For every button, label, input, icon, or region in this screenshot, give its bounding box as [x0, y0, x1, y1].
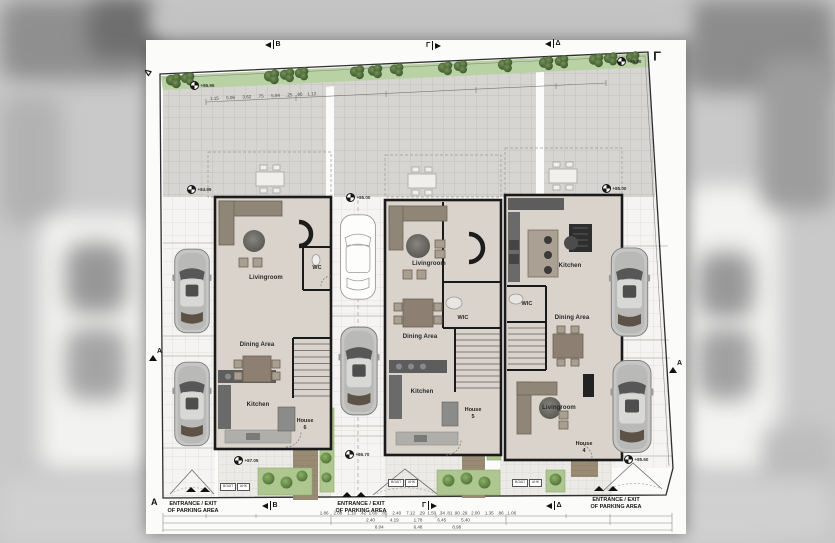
section-marker-gamma-bottom: Γ: [422, 501, 437, 510]
elevation-marker: +86.70: [345, 450, 369, 459]
house-tag-name: House: [297, 418, 314, 424]
room-label-livingroom: Livingroom: [249, 275, 283, 281]
section-arrow-icon: [262, 503, 268, 509]
house-tag: House 5: [465, 407, 482, 421]
elevation-marker: +87.05: [234, 456, 258, 465]
entrance-label: ENTRANCE / EXIT OF PARKING AREA: [590, 497, 641, 511]
house-tag: House 6: [297, 418, 314, 432]
utility-boxes: ΒΟΑΠ ΑΗΚ: [512, 479, 542, 487]
car-outline: [341, 215, 376, 299]
gate-chevrons: [186, 487, 210, 492]
room-label-kitchen: Kitchen: [411, 389, 434, 395]
house-tag-number: 5: [471, 414, 474, 420]
entrance-line2: OF PARKING AREA: [590, 504, 641, 510]
elevation-marker: +85.60: [624, 455, 648, 464]
dimension-text-row3: 8.04 6.48 8.98: [168, 525, 668, 530]
section-arrow-icon: [149, 348, 157, 361]
room-label-dining: Dining Area: [403, 334, 438, 340]
section-marker-b-top: B: [265, 40, 281, 49]
house-tag-name: House: [576, 441, 593, 447]
house-tag-name: House: [465, 407, 482, 413]
house-tag-number: 4: [582, 448, 585, 454]
entrance-line1: ENTRANCE / EXIT: [169, 501, 216, 507]
level-icon: [602, 184, 611, 193]
elevation-marker: +85.00: [602, 184, 626, 193]
floor-plan-sheet: Livingroom WC Dining Area Kitchen Living…: [146, 40, 686, 534]
utility-boxes: ΒΟΑΠ ΑΗΚ: [388, 479, 418, 487]
plan-drawing: [146, 40, 686, 534]
gate-chevrons: [594, 486, 618, 491]
room-label-dining: Dining Area: [555, 315, 590, 321]
blur-blob: [698, 252, 754, 318]
section-marker-b-bottom: B: [262, 501, 278, 510]
elevation-marker: +84.95: [187, 185, 211, 194]
car-top-view: [172, 249, 211, 333]
section-marker-a-right: A: [669, 360, 682, 367]
level-icon: [346, 193, 355, 202]
section-marker-delta-top: Δ: [545, 39, 561, 48]
room-label-kitchen: Kitchen: [559, 263, 582, 269]
section-arrow-icon: [431, 503, 437, 509]
utility-box-label: ΒΟΑΠ: [220, 483, 236, 491]
room-label-wc: WC: [312, 265, 321, 271]
houses-structure: [215, 195, 622, 460]
section-arrow-icon: [435, 43, 441, 49]
level-icon: [617, 57, 626, 66]
elevation-marker: +85.95: [190, 81, 214, 90]
section-arrow-icon: [669, 360, 677, 373]
utility-box-label: ΒΟΑΠ: [512, 479, 528, 487]
car-top-view: [172, 362, 211, 446]
utility-boxes: ΒΟΑΠ ΑΗΚ: [220, 483, 250, 491]
house-tag: House 4: [576, 441, 593, 455]
dimension-text-row2: 2.40 4.19 1.78 6.45 5.40: [168, 518, 668, 523]
elevation-marker: +85.80: [617, 57, 641, 66]
section-marker-a-bottom: A: [151, 498, 158, 507]
room-label-kitchen: Kitchen: [247, 402, 270, 408]
level-icon: [345, 450, 354, 459]
car-top-view: [609, 248, 650, 336]
house-tag-number: 6: [303, 425, 306, 431]
gate-chevrons: [342, 492, 366, 497]
elevation-marker: +85.00: [346, 193, 370, 202]
entrance-line1: ENTRANCE / EXIT: [337, 501, 384, 507]
section-arrow-icon: [545, 41, 551, 47]
level-icon: [234, 456, 243, 465]
utility-box-label: ΒΟΑΠ: [388, 479, 404, 487]
level-icon: [624, 455, 633, 464]
floor-plan-screenshot: Livingroom WC Dining Area Kitchen Living…: [0, 0, 835, 543]
blur-blob: [0, 95, 62, 225]
room-label-dining: Dining Area: [240, 342, 275, 348]
blur-blob: [66, 328, 126, 400]
utility-box-label: ΑΗΚ: [405, 479, 418, 487]
blur-blob: [760, 60, 835, 210]
utility-box-label: ΑΗΚ: [237, 483, 250, 491]
car-top-view: [611, 361, 654, 453]
level-icon: [190, 81, 199, 90]
section-marker-gamma-top: Γ: [426, 41, 441, 50]
section-arrow-icon: [265, 42, 271, 48]
blur-blob: [698, 328, 754, 400]
section-marker-delta-bottom: Δ: [546, 501, 562, 510]
section-arrow-icon: [546, 503, 552, 509]
room-label-livingroom: Livingroom: [412, 261, 446, 267]
boundary-corner-label: Γ: [653, 49, 661, 64]
car-top-view: [338, 327, 379, 415]
entrance-line1: ENTRANCE / EXIT: [592, 497, 639, 503]
room-label-wic: WIC: [458, 315, 469, 321]
utility-box-label: ΑΗΚ: [529, 479, 542, 487]
level-icon: [187, 185, 196, 194]
room-label-wic: WIC: [522, 301, 533, 307]
blur-blob: [66, 243, 126, 313]
section-marker-a-left: A: [149, 348, 162, 355]
dimension-text-row1: 1.86 2.88 1.10 .42 1.60 .85 2.40 7.12 .2…: [168, 511, 668, 516]
blur-blob: [150, 0, 690, 42]
room-label-livingroom: Livingroom: [542, 405, 576, 411]
